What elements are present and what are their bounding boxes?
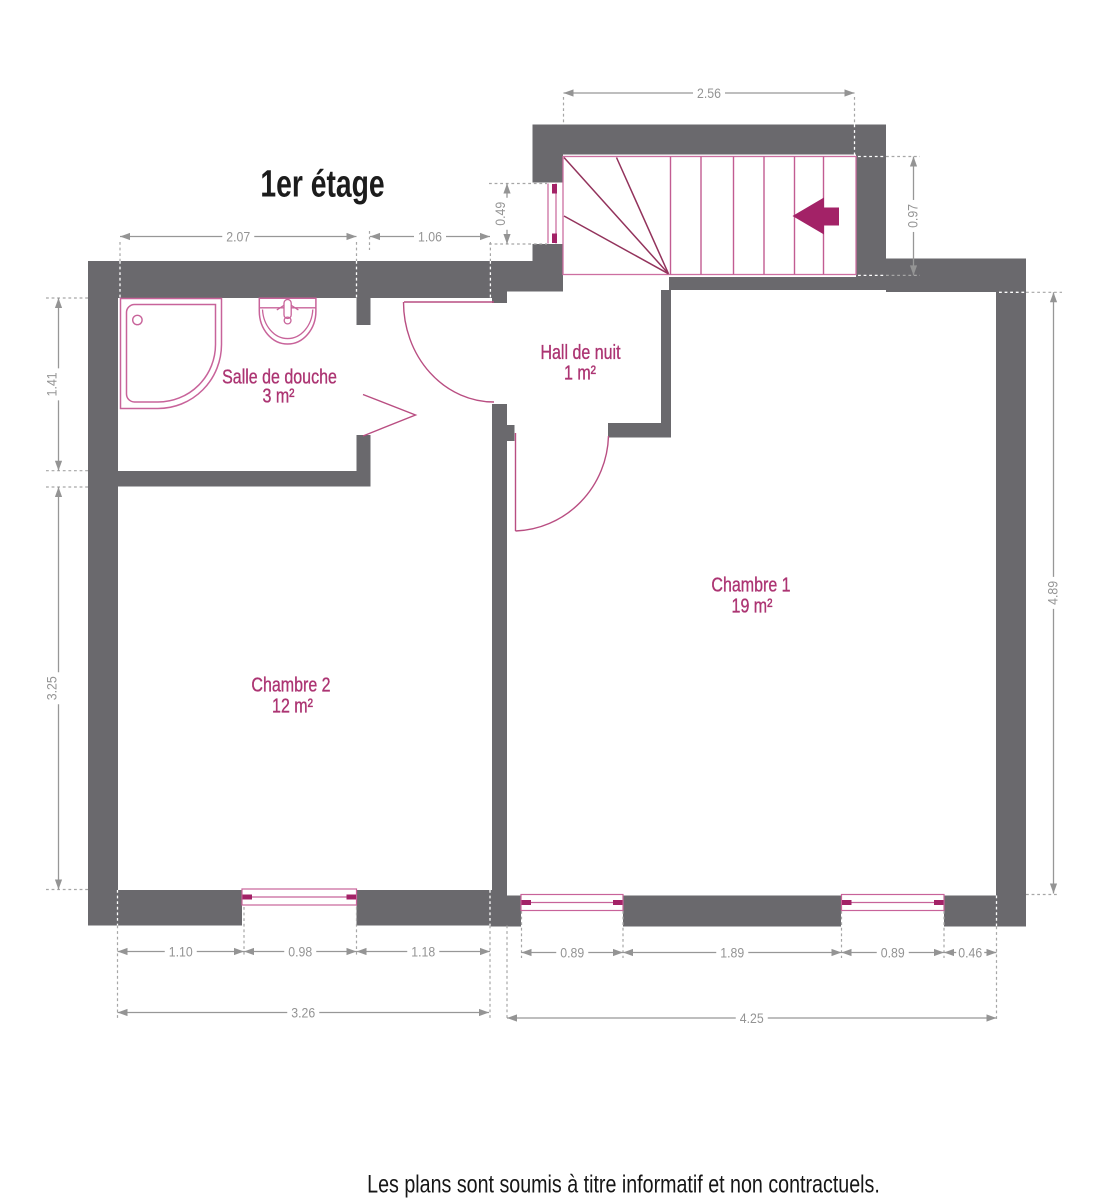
svg-text:1er étage: 1er étage (260, 164, 384, 206)
svg-text:0.97: 0.97 (905, 204, 921, 228)
svg-text:Chambre 1: Chambre 1 (711, 574, 790, 596)
svg-text:3 m²: 3 m² (262, 385, 294, 407)
svg-text:Chambre 2: Chambre 2 (251, 674, 330, 696)
svg-text:2.56: 2.56 (697, 85, 721, 101)
svg-text:4.89: 4.89 (1045, 581, 1061, 605)
svg-text:4.25: 4.25 (740, 1010, 764, 1026)
svg-text:12 m²: 12 m² (272, 695, 313, 717)
svg-text:19 m²: 19 m² (732, 595, 773, 617)
svg-text:0.46: 0.46 (958, 945, 982, 961)
svg-text:1.41: 1.41 (44, 372, 60, 396)
svg-text:3.25: 3.25 (44, 676, 60, 700)
svg-text:0.89: 0.89 (881, 945, 905, 961)
svg-text:0.89: 0.89 (560, 945, 584, 961)
svg-text:1.10: 1.10 (169, 944, 193, 960)
svg-text:0.98: 0.98 (288, 944, 312, 960)
svg-text:0.49: 0.49 (492, 202, 508, 226)
svg-text:2.07: 2.07 (226, 229, 250, 245)
svg-text:1.06: 1.06 (418, 229, 442, 245)
svg-text:1.18: 1.18 (411, 944, 435, 960)
svg-text:1.89: 1.89 (720, 945, 744, 961)
svg-text:3.26: 3.26 (291, 1005, 315, 1021)
svg-text:Hall de nuit: Hall de nuit (540, 341, 620, 363)
svg-text:1 m²: 1 m² (564, 362, 596, 384)
svg-text:Les plans sont soumis à titre: Les plans sont soumis à titre informatif… (367, 1170, 880, 1198)
